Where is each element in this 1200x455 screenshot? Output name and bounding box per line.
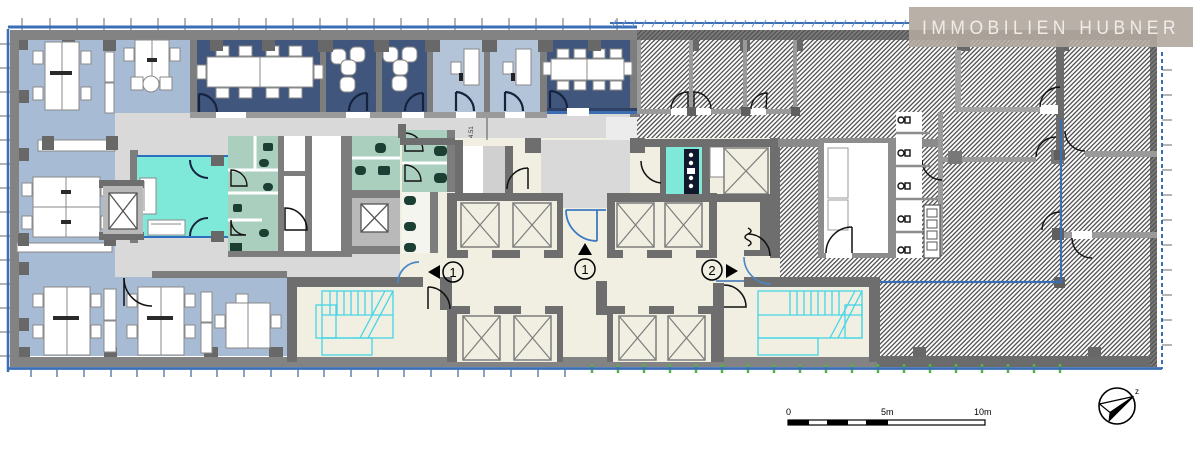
svg-text:2: 2 [708, 263, 715, 278]
svg-text:0: 0 [786, 407, 791, 417]
svg-text:1: 1 [581, 262, 588, 277]
svg-text:1: 1 [449, 265, 456, 280]
svg-text:5m: 5m [881, 407, 894, 417]
svg-text:z: z [1135, 387, 1139, 396]
svg-text:IMMOBILIEN HUBNER: IMMOBILIEN HUBNER [922, 17, 1180, 39]
svg-text:10m: 10m [974, 407, 992, 417]
svg-text:4.51: 4.51 [469, 126, 475, 138]
